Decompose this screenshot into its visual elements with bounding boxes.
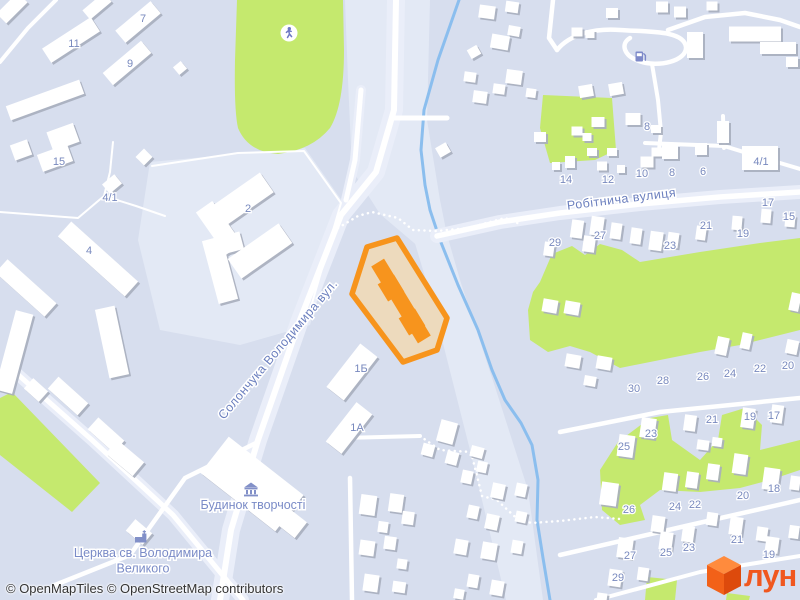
building <box>480 541 498 560</box>
building <box>565 156 575 168</box>
building-number-label: 21 <box>700 220 712 232</box>
map-canvas[interactable]: Будинок творчостіЦерква св. ВолодимираВе… <box>0 0 800 600</box>
building-number-label: 20 <box>737 490 749 502</box>
building <box>570 219 584 238</box>
building <box>514 510 527 523</box>
building <box>401 511 415 526</box>
building-number-label: 21 <box>706 414 718 426</box>
poi-label: Великого <box>117 562 170 576</box>
building-number-label: 21 <box>731 534 743 546</box>
building-number-label: 17 <box>768 410 780 422</box>
building <box>592 117 605 127</box>
building <box>681 525 695 543</box>
building <box>507 25 521 37</box>
building <box>626 113 641 125</box>
building <box>525 88 536 98</box>
building <box>388 493 404 513</box>
building <box>510 540 523 555</box>
building <box>609 222 622 239</box>
building <box>583 133 592 141</box>
runner-icon <box>281 25 298 42</box>
building <box>608 82 624 96</box>
building-number-label: 24 <box>724 368 736 380</box>
building-number-label: 24 <box>669 501 681 513</box>
building-number-label: 23 <box>664 240 676 252</box>
lun-logo-text: лун <box>744 554 796 598</box>
building <box>595 355 612 370</box>
building <box>392 581 406 594</box>
road <box>350 478 352 600</box>
building <box>637 567 650 581</box>
building <box>732 453 749 475</box>
building <box>629 227 642 244</box>
building <box>472 90 488 104</box>
building <box>572 127 583 136</box>
building <box>359 540 376 557</box>
building <box>650 515 665 533</box>
building-number-label: 29 <box>612 572 624 584</box>
building <box>607 148 617 156</box>
building-number-label: 26 <box>697 371 709 383</box>
building <box>534 132 546 142</box>
building <box>641 157 654 168</box>
building <box>563 300 580 315</box>
building <box>359 494 378 516</box>
building <box>383 536 397 551</box>
building <box>489 579 504 596</box>
building <box>599 481 619 506</box>
building-number-label: 14 <box>560 174 572 186</box>
building-number-label: 30 <box>628 383 640 395</box>
building <box>707 2 718 11</box>
building <box>651 125 661 133</box>
building-number-label: 27 <box>624 550 636 562</box>
building <box>685 471 699 489</box>
building <box>728 516 743 536</box>
building-number-label: 25 <box>660 547 672 559</box>
building <box>572 28 583 37</box>
building-number-label: 9 <box>127 58 133 70</box>
building <box>696 439 709 451</box>
building <box>583 375 597 387</box>
building <box>760 42 796 54</box>
building <box>760 209 771 224</box>
building <box>656 2 668 13</box>
building-number-label: 15 <box>53 156 65 168</box>
building <box>453 538 468 555</box>
building <box>788 525 800 539</box>
building <box>587 148 597 156</box>
building-number-label: 23 <box>683 542 695 554</box>
building <box>377 521 388 533</box>
building <box>674 7 686 18</box>
building <box>695 143 707 155</box>
poi-label: Будинок творчості <box>201 498 306 512</box>
building <box>617 165 625 173</box>
building <box>662 472 678 492</box>
building-number-label: 1А <box>350 422 364 434</box>
building-number-label: 11 <box>68 38 79 50</box>
building <box>466 574 479 589</box>
building-number-label: 22 <box>689 499 701 511</box>
building <box>706 463 720 481</box>
building <box>564 353 581 368</box>
building <box>505 1 519 14</box>
map-attribution[interactable]: © OpenMapTiles © OpenStreetMap contribut… <box>6 581 283 596</box>
building-number-label: 29 <box>549 237 561 249</box>
building-number-label: 2 <box>245 203 251 215</box>
building-number-label: 20 <box>782 360 794 372</box>
building-number-label: 26 <box>623 504 635 516</box>
building <box>541 298 558 313</box>
building-number-label: 10 <box>636 168 648 180</box>
building <box>396 558 407 569</box>
lun-logo[interactable]: лун <box>704 554 796 598</box>
building-number-label: 1Б <box>354 363 367 375</box>
building-number-label: 28 <box>657 375 669 387</box>
building-number-label: 17 <box>762 197 774 209</box>
building <box>711 437 722 447</box>
building <box>683 414 697 432</box>
building-number-label: 8 <box>644 121 650 133</box>
building-number-label: 19 <box>744 411 756 423</box>
building <box>597 162 607 171</box>
building <box>789 475 800 490</box>
poi-label: Церква св. Володимира <box>74 546 212 560</box>
building <box>729 27 781 42</box>
building-number-label: 8 <box>669 167 675 179</box>
building-number-label: 18 <box>768 483 780 495</box>
building-number-label: 4 <box>86 245 92 257</box>
building <box>362 574 379 593</box>
building-number-label: 23 <box>645 428 657 440</box>
building <box>453 588 465 600</box>
building-number-label: 4/1 <box>753 156 768 168</box>
building <box>662 145 678 159</box>
building-number-label: 27 <box>594 230 606 242</box>
building <box>505 69 523 85</box>
building <box>606 8 618 18</box>
building-number-label: 19 <box>737 228 749 240</box>
building <box>706 512 719 526</box>
map-svg: Будинок творчостіЦерква св. ВолодимираВе… <box>0 0 800 600</box>
building <box>717 121 729 143</box>
building <box>492 83 505 95</box>
building-number-label: 6 <box>700 166 706 178</box>
building <box>586 30 595 38</box>
building <box>463 71 476 83</box>
building <box>786 57 798 67</box>
building <box>652 148 663 157</box>
building <box>552 162 560 170</box>
building-number-label: 22 <box>754 363 766 375</box>
lun-cube-icon <box>704 554 744 598</box>
building-number-label: 7 <box>140 13 146 25</box>
building <box>648 231 664 252</box>
building <box>478 4 496 19</box>
building-number-label: 12 <box>602 174 614 186</box>
building <box>687 32 703 58</box>
building-number-label: 4/1 <box>102 192 117 204</box>
building-number-label: 25 <box>618 441 630 453</box>
building <box>578 84 594 98</box>
building-number-label: 15 <box>783 211 795 223</box>
